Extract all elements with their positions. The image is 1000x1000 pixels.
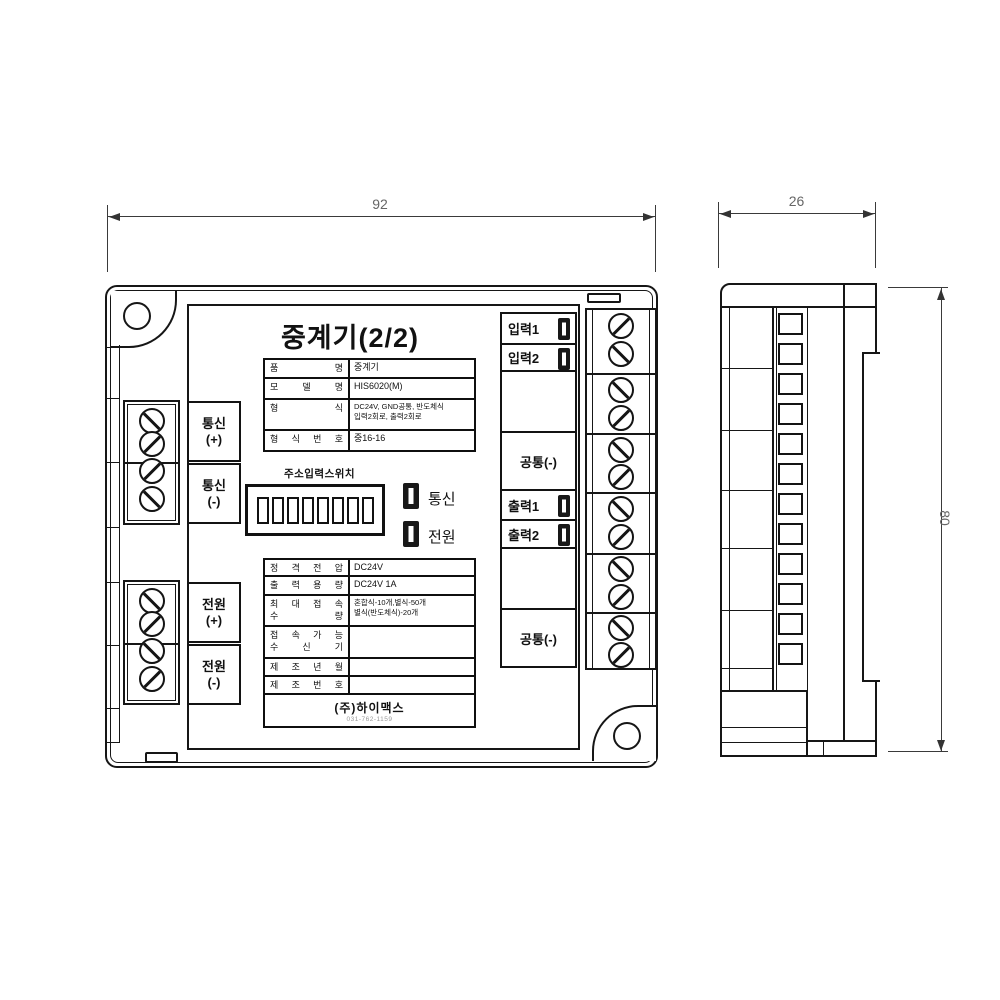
- comm-led-label: 통신: [428, 488, 456, 509]
- dimension-label: 80: [937, 501, 953, 535]
- comm-led-icon: [403, 483, 419, 509]
- terminal-window: [778, 403, 803, 425]
- arrowhead-icon: [643, 213, 654, 221]
- screw-terminal: [608, 496, 634, 522]
- case-edge-line: [106, 742, 119, 743]
- screw-terminal: [608, 464, 634, 490]
- side-edge-line: [729, 308, 730, 690]
- info-label: 제 조 번 호: [265, 677, 350, 693]
- terminal-polarity: (+): [206, 613, 222, 629]
- spec-label: 품 명: [265, 360, 350, 377]
- table-row: 형 식 번 호 중16-16: [265, 431, 474, 450]
- terminal-name: 공통(-): [520, 629, 557, 648]
- side-block-line: [722, 668, 772, 669]
- manufacturer-row: (주)하이맥스 031-762-1159: [265, 695, 474, 726]
- terminal-window: [778, 313, 803, 335]
- info-label: 제 조 년 월: [265, 659, 350, 675]
- terminal-label-power-minus: 전원 (-): [187, 644, 241, 705]
- info-label: 정 격 전 압: [265, 560, 350, 575]
- screw-terminal: [608, 437, 634, 463]
- arrowhead-icon: [937, 740, 945, 751]
- terminal-name: 입력2: [502, 348, 539, 367]
- terminal-label-common-bottom: 공통(-): [500, 608, 577, 668]
- terminal-name: 통신: [202, 478, 226, 494]
- info-label-line: 접 속 가 능: [270, 629, 343, 641]
- screw-terminal: [139, 666, 165, 692]
- case-edge-line: [106, 527, 119, 528]
- table-row: 형 식 DC24V, GND공통, 반도체식 입력2회로, 출력2회로: [265, 400, 474, 431]
- info-value-line: 혼합식-10개,별식-50개: [354, 598, 470, 608]
- terminal-window: [778, 343, 803, 365]
- screw-terminal: [608, 524, 634, 550]
- terminal-label-comm-plus: 통신 (+): [187, 401, 241, 462]
- terminal-window: [778, 523, 803, 545]
- info-label-line: 수 량: [270, 610, 343, 622]
- terminal-name: 전원: [202, 659, 226, 675]
- side-bottom-line: [806, 740, 875, 742]
- terminal-window: [778, 613, 803, 635]
- terminal-divider: [585, 553, 657, 555]
- spec-value: DC24V, GND공통, 반도체식 입력2회로, 출력2회로: [350, 400, 474, 429]
- side-block-line: [722, 368, 772, 369]
- arrowhead-icon: [109, 213, 120, 221]
- side-bottom-line: [722, 727, 806, 728]
- side-top-divider: [843, 285, 845, 307]
- terminal-polarity: (+): [206, 432, 222, 448]
- dip-switch-1: [257, 497, 269, 524]
- spec-value: 중계기: [350, 360, 474, 377]
- case-edge-line: [106, 398, 119, 399]
- side-block-line: [722, 610, 772, 611]
- dip-switch: [245, 484, 385, 536]
- side-inner-wall: [843, 308, 845, 740]
- screw-terminal: [608, 405, 634, 431]
- terminal-window: [778, 643, 803, 665]
- table-row: 출 력 용 량 DC24V 1A: [265, 577, 474, 596]
- table-row: 정 격 전 압 DC24V: [265, 560, 474, 577]
- case-slot: [587, 293, 621, 303]
- terminal-name: 통신: [202, 416, 226, 432]
- dimension-line: [107, 216, 655, 217]
- terminal-polarity: (-): [208, 494, 221, 510]
- screw-terminal: [139, 486, 165, 512]
- technical-drawing: 92 26 80: [0, 0, 1000, 1000]
- extension-line: [875, 202, 876, 268]
- extension-line: [718, 202, 719, 268]
- info-table: 정 격 전 압 DC24V 출 력 용 량 DC24V 1A 최 대 접 속 수…: [263, 558, 476, 728]
- case-edge-line: [106, 462, 119, 463]
- screw-terminal: [139, 431, 165, 457]
- info-value: [350, 659, 474, 675]
- spec-value: HIS6020(M): [350, 379, 474, 398]
- table-row: 접 속 가 능 수 신 기: [265, 627, 474, 659]
- terminal-window: [778, 583, 803, 605]
- terminal-window: [778, 493, 803, 515]
- spec-value: 중16-16: [350, 431, 474, 450]
- extension-line: [888, 751, 948, 752]
- spec-value-line: 입력2회로, 출력2회로: [354, 412, 470, 422]
- dimension-line: [718, 213, 875, 214]
- info-label: 출 력 용 량: [265, 577, 350, 594]
- side-strip-line: [807, 308, 808, 690]
- case-edge-line: [106, 347, 119, 348]
- case-edge-line: [106, 708, 119, 709]
- dip-switch-8: [362, 497, 374, 524]
- terminal-label-output1: 출력1: [500, 489, 577, 521]
- arrowhead-icon: [863, 210, 874, 218]
- screw-terminal: [608, 556, 634, 582]
- terminal-polarity: (-): [208, 675, 221, 691]
- side-block-line: [722, 490, 772, 491]
- dip-switch-label: 주소입력스위치: [252, 466, 387, 481]
- side-strip-line: [776, 308, 777, 690]
- info-label: 접 속 가 능 수 신 기: [265, 627, 350, 657]
- side-bottom-line: [806, 690, 808, 755]
- terminal-label-output2: 출력2: [500, 519, 577, 549]
- terminal-label-input2: 입력2: [500, 343, 577, 372]
- terminal-divider: [585, 373, 657, 375]
- terminal-name: 공통(-): [520, 452, 557, 471]
- side-block-line: [722, 548, 772, 549]
- info-label-line: 수 신 기: [270, 641, 343, 653]
- info-value: DC24V 1A: [350, 577, 474, 594]
- screw-terminal: [139, 458, 165, 484]
- screw-terminal: [608, 313, 634, 339]
- extension-line: [888, 287, 948, 288]
- dip-switch-7: [347, 497, 359, 524]
- terminal-name: 출력1: [502, 496, 539, 515]
- side-bottom-line: [823, 740, 824, 755]
- info-value: [350, 627, 474, 657]
- spec-value-line: DC24V, GND공통, 반도체식: [354, 402, 470, 412]
- screw-terminal: [608, 341, 634, 367]
- manufacturer-contact: 031-762-1159: [347, 716, 393, 723]
- power-led-label: 전원: [428, 526, 456, 547]
- table-row: 최 대 접 속 수 량 혼합식-10개,별식-50개 별식(반도체식)-20개: [265, 596, 474, 627]
- side-block-line: [722, 430, 772, 431]
- side-top-cap-line: [722, 306, 875, 308]
- terminal-window: [778, 433, 803, 455]
- terminal-label-input1: 입력1: [500, 312, 577, 345]
- power-led-icon: [403, 521, 419, 547]
- terminal-label-common-top: 공통(-): [500, 431, 577, 491]
- terminal-divider: [585, 492, 657, 494]
- spec-table: 품 명 중계기 모 델 명 HIS6020(M) 형 식 DC24V, GND공…: [263, 358, 476, 452]
- info-label-line: 최 대 접 속: [270, 598, 343, 610]
- manufacturer-name: (주)하이맥스: [334, 699, 404, 716]
- case-slot: [145, 752, 178, 763]
- side-recess: [862, 352, 880, 682]
- output1-led-icon: [558, 495, 570, 517]
- case-edge-line: [106, 582, 119, 583]
- input2-led-icon: [558, 348, 570, 370]
- case-edge-line: [119, 345, 120, 743]
- side-bottom-line: [722, 742, 806, 743]
- screw-terminal: [608, 642, 634, 668]
- info-value-line: 별식(반도체식)-20개: [354, 608, 470, 618]
- table-row: 모 델 명 HIS6020(M): [265, 379, 474, 400]
- screw-terminal: [608, 584, 634, 610]
- screw-terminal: [139, 638, 165, 664]
- dip-switch-4: [302, 497, 314, 524]
- terminal-label-power-plus: 전원 (+): [187, 582, 241, 643]
- side-column-line: [772, 308, 774, 690]
- output2-led-icon: [558, 524, 570, 546]
- arrowhead-icon: [937, 289, 945, 300]
- dip-switch-6: [332, 497, 344, 524]
- table-row: 제 조 번 호: [265, 677, 474, 695]
- terminal-divider: [585, 612, 657, 614]
- terminal-name: 출력2: [502, 525, 539, 544]
- case-edge-line: [106, 645, 119, 646]
- info-value: DC24V: [350, 560, 474, 575]
- terminal-window: [778, 463, 803, 485]
- dimension-label: 92: [350, 196, 410, 212]
- terminal-name: 입력1: [502, 319, 539, 338]
- dip-switch-2: [272, 497, 284, 524]
- spec-label: 형 식: [265, 400, 350, 429]
- terminal-label-comm-minus: 통신 (-): [187, 463, 241, 524]
- input1-led-icon: [558, 318, 570, 340]
- spec-label: 형 식 번 호: [265, 431, 350, 450]
- terminal-window: [778, 373, 803, 395]
- screw-terminal: [139, 611, 165, 637]
- side-bottom-line: [722, 690, 806, 692]
- spec-label: 모 델 명: [265, 379, 350, 398]
- terminal-divider: [585, 433, 657, 435]
- arrowhead-icon: [720, 210, 731, 218]
- info-value: [350, 677, 474, 693]
- dip-switch-3: [287, 497, 299, 524]
- extension-line: [655, 205, 656, 272]
- info-value: 혼합식-10개,별식-50개 별식(반도체식)-20개: [350, 596, 474, 625]
- screw-terminal: [608, 615, 634, 641]
- info-label: 최 대 접 속 수 량: [265, 596, 350, 625]
- spacer-box: [500, 547, 577, 610]
- dimension-label: 26: [769, 193, 824, 209]
- terminal-name: 전원: [202, 597, 226, 613]
- mounting-hole: [123, 302, 151, 330]
- dip-switch-5: [317, 497, 329, 524]
- spacer-box: [500, 370, 577, 433]
- mounting-hole: [613, 722, 641, 750]
- terminal-window: [778, 553, 803, 575]
- table-row: 제 조 년 월: [265, 659, 474, 677]
- table-row: 품 명 중계기: [265, 360, 474, 379]
- screw-terminal: [608, 377, 634, 403]
- device-title: 중계기(2/2): [245, 316, 455, 355]
